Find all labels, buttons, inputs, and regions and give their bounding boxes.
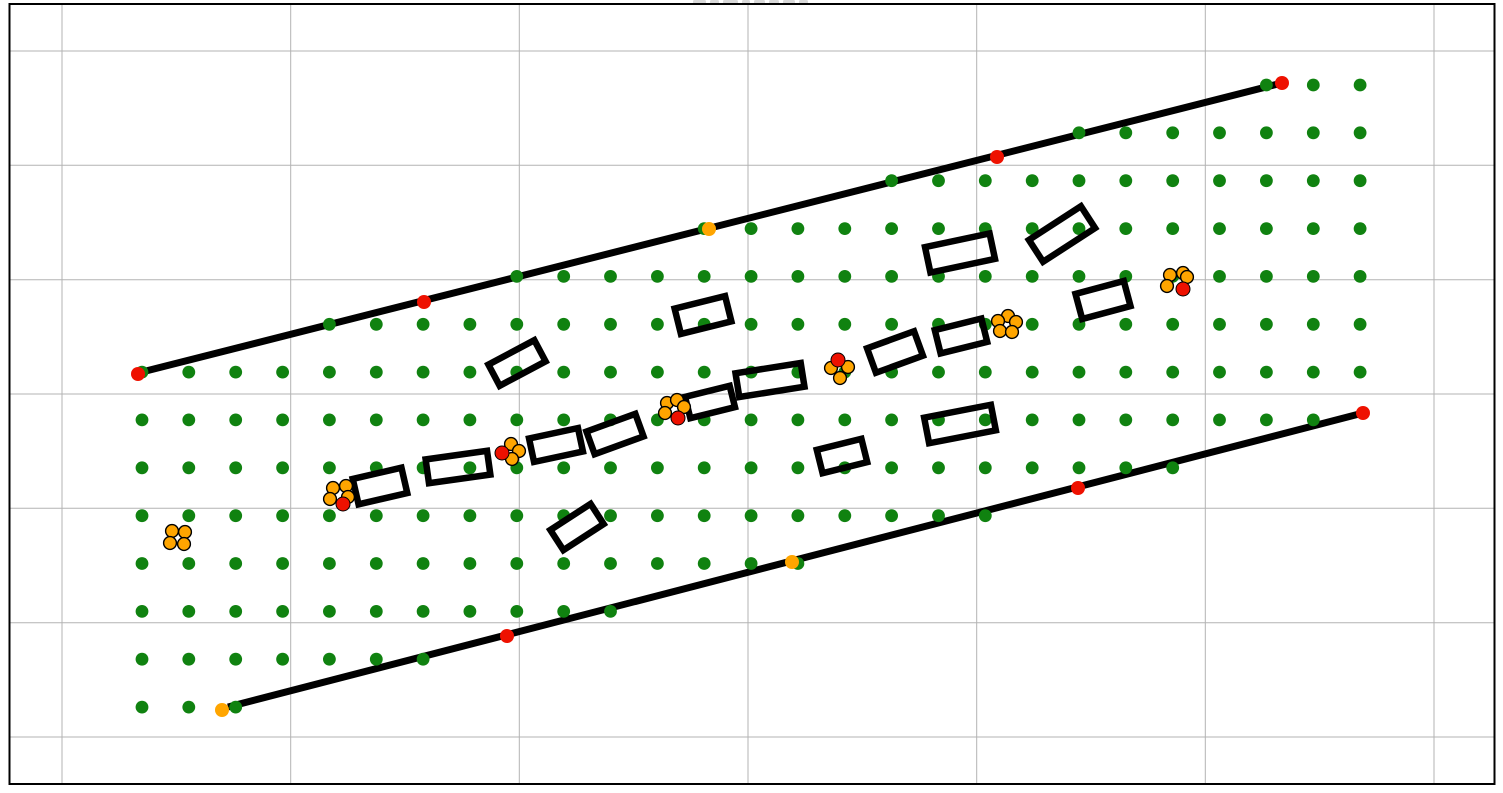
sample-point	[1260, 318, 1273, 331]
sample-point	[1026, 461, 1039, 474]
waypoint-red-dot	[990, 150, 1004, 164]
sample-point	[1166, 461, 1179, 474]
sample-point	[745, 509, 758, 522]
sample-point	[604, 557, 617, 570]
sample-point	[510, 318, 523, 331]
sample-point	[932, 509, 945, 522]
sample-point	[1260, 126, 1273, 139]
sample-point	[323, 318, 336, 331]
sample-point	[1307, 318, 1320, 331]
sample-point	[464, 605, 477, 618]
sample-point	[1119, 414, 1132, 427]
waypoint-orange-dot	[702, 222, 716, 236]
sample-point	[276, 509, 289, 522]
sample-point	[136, 653, 149, 666]
sample-point	[885, 222, 898, 235]
sample-point	[1026, 174, 1039, 187]
sample-point	[1354, 222, 1367, 235]
sample-point	[1354, 79, 1367, 92]
sample-point	[182, 557, 195, 570]
sample-point	[698, 461, 711, 474]
sample-point	[182, 414, 195, 427]
sample-point	[464, 414, 477, 427]
sample-point	[510, 605, 523, 618]
sample-point	[792, 414, 805, 427]
sample-point	[464, 318, 477, 331]
sample-point	[464, 366, 477, 379]
sample-point	[1213, 270, 1226, 283]
sample-point	[1354, 126, 1367, 139]
sample-point	[1260, 270, 1273, 283]
cluster-orange-dot	[994, 325, 1007, 338]
sample-point	[510, 509, 523, 522]
sample-point	[417, 605, 430, 618]
sample-point	[510, 557, 523, 570]
cluster-orange-dot	[164, 537, 177, 550]
sample-point	[182, 701, 195, 714]
sample-point	[417, 414, 430, 427]
sample-point	[745, 414, 758, 427]
sample-point	[136, 701, 149, 714]
cluster-red-dot	[1176, 282, 1190, 296]
sample-point	[651, 270, 664, 283]
sample-point	[1026, 270, 1039, 283]
sample-point	[651, 366, 664, 379]
sample-point	[182, 461, 195, 474]
sample-point	[136, 414, 149, 427]
cluster-orange-dot	[179, 526, 192, 539]
sample-point	[1354, 366, 1367, 379]
sample-point	[698, 270, 711, 283]
plot-canvas	[0, 0, 1503, 793]
sample-point	[792, 270, 805, 283]
sample-point	[838, 509, 851, 522]
sample-point	[604, 366, 617, 379]
sample-point	[745, 270, 758, 283]
sample-point	[464, 461, 477, 474]
cluster-orange-dot	[659, 407, 672, 420]
sample-point	[229, 366, 242, 379]
sample-point	[1073, 126, 1086, 139]
sample-point	[838, 414, 851, 427]
sample-point	[1073, 174, 1086, 187]
sample-point	[276, 557, 289, 570]
sample-point	[323, 605, 336, 618]
cluster-red-dot	[336, 497, 350, 511]
sample-point	[1119, 174, 1132, 187]
sample-point	[1166, 366, 1179, 379]
sample-point	[979, 509, 992, 522]
cluster-orange-dot	[1006, 326, 1019, 339]
sample-point	[1073, 366, 1086, 379]
sample-point	[838, 318, 851, 331]
sample-point	[1213, 222, 1226, 235]
cluster-orange-dot	[324, 493, 337, 506]
sample-point	[1307, 414, 1320, 427]
sample-point	[604, 605, 617, 618]
sample-point	[136, 509, 149, 522]
sample-point	[557, 366, 570, 379]
sample-point	[370, 318, 383, 331]
sample-point	[838, 270, 851, 283]
sample-point	[276, 366, 289, 379]
sample-point	[745, 461, 758, 474]
sample-point	[276, 461, 289, 474]
sample-point	[1166, 174, 1179, 187]
sample-point	[1119, 461, 1132, 474]
sample-point	[932, 366, 945, 379]
sample-point	[651, 509, 664, 522]
sample-point	[698, 366, 711, 379]
sample-point	[229, 461, 242, 474]
sample-point	[1166, 222, 1179, 235]
cluster-red-dot	[495, 446, 509, 460]
cluster-red-dot	[831, 353, 845, 367]
sample-point	[604, 318, 617, 331]
sample-point	[745, 222, 758, 235]
cluster-orange-dot	[178, 538, 191, 551]
sample-point	[557, 605, 570, 618]
sample-point	[979, 174, 992, 187]
waypoint-orange-dot	[215, 703, 229, 717]
cluster-red-dot	[671, 411, 685, 425]
sample-point	[792, 509, 805, 522]
sample-point	[792, 461, 805, 474]
sample-point	[698, 509, 711, 522]
sample-point	[370, 509, 383, 522]
sample-point	[838, 222, 851, 235]
sample-point	[1026, 366, 1039, 379]
sample-point	[417, 653, 430, 666]
sample-point	[1166, 414, 1179, 427]
sample-point	[1354, 174, 1367, 187]
sample-point	[182, 605, 195, 618]
sample-point	[1119, 318, 1132, 331]
waypoint-red-dot	[131, 367, 145, 381]
cluster-orange-dot	[834, 372, 847, 385]
sample-point	[136, 461, 149, 474]
sample-point	[323, 509, 336, 522]
sample-point	[229, 557, 242, 570]
sample-point	[323, 557, 336, 570]
sample-point	[323, 366, 336, 379]
sample-point	[557, 318, 570, 331]
cluster-orange-dot	[1181, 271, 1194, 284]
sample-point	[651, 461, 664, 474]
sample-point	[464, 557, 477, 570]
sample-point	[1073, 461, 1086, 474]
sample-point	[885, 509, 898, 522]
sample-point	[885, 318, 898, 331]
sample-point	[370, 366, 383, 379]
waypoint-red-dot	[1071, 481, 1085, 495]
sample-point	[370, 653, 383, 666]
sample-point	[932, 174, 945, 187]
sample-point	[792, 318, 805, 331]
sample-point	[557, 414, 570, 427]
sample-point	[1026, 414, 1039, 427]
sample-point	[229, 653, 242, 666]
sample-point	[557, 557, 570, 570]
sample-point	[1307, 270, 1320, 283]
sample-point	[979, 461, 992, 474]
sample-point	[979, 270, 992, 283]
sample-point	[1119, 126, 1132, 139]
sample-point	[276, 605, 289, 618]
sample-point	[1260, 414, 1273, 427]
sample-point	[229, 605, 242, 618]
sample-point	[323, 461, 336, 474]
sample-point	[557, 461, 570, 474]
sample-point	[745, 557, 758, 570]
sample-point	[1213, 414, 1226, 427]
sample-point	[323, 653, 336, 666]
sample-point	[1213, 174, 1226, 187]
sample-point	[557, 270, 570, 283]
sample-point	[745, 318, 758, 331]
sample-point	[1026, 318, 1039, 331]
sample-point	[417, 318, 430, 331]
sample-point	[1260, 222, 1273, 235]
sample-point	[464, 509, 477, 522]
sample-point	[885, 461, 898, 474]
sample-point	[885, 414, 898, 427]
sample-point	[1073, 414, 1086, 427]
sample-point	[932, 461, 945, 474]
sample-point	[1354, 318, 1367, 331]
sample-point	[1260, 366, 1273, 379]
sample-point	[1307, 366, 1320, 379]
sample-point	[604, 509, 617, 522]
waypoint-red-dot	[500, 629, 514, 643]
sample-point	[1307, 126, 1320, 139]
sample-point	[136, 557, 149, 570]
sample-point	[1354, 270, 1367, 283]
sample-point	[651, 318, 664, 331]
waypoint-red-dot	[1356, 406, 1370, 420]
sample-point	[1073, 270, 1086, 283]
waypoint-red-dot	[417, 295, 431, 309]
sample-point	[417, 366, 430, 379]
sample-point	[136, 605, 149, 618]
cluster-orange-dot	[1161, 280, 1174, 293]
sample-point	[698, 557, 711, 570]
sample-point	[229, 509, 242, 522]
sample-point	[323, 414, 336, 427]
sample-point	[417, 509, 430, 522]
sample-point	[932, 222, 945, 235]
sample-point	[182, 653, 195, 666]
sample-point	[651, 557, 664, 570]
waypoint-red-dot	[1275, 76, 1289, 90]
sample-point	[1213, 318, 1226, 331]
sample-point	[276, 414, 289, 427]
sample-point	[1166, 126, 1179, 139]
sample-point	[1260, 79, 1273, 92]
sample-point	[1119, 366, 1132, 379]
sample-point	[229, 414, 242, 427]
sample-point	[510, 270, 523, 283]
sample-point	[1166, 318, 1179, 331]
sample-point	[182, 366, 195, 379]
sample-point	[792, 222, 805, 235]
sample-point	[276, 653, 289, 666]
sample-point	[417, 557, 430, 570]
sample-point	[604, 461, 617, 474]
sample-point	[1307, 79, 1320, 92]
sample-point	[979, 366, 992, 379]
sample-point	[1213, 366, 1226, 379]
sample-point	[510, 414, 523, 427]
sample-point	[1119, 222, 1132, 235]
sample-point	[604, 270, 617, 283]
sample-point	[1307, 174, 1320, 187]
sample-point	[370, 605, 383, 618]
sample-point	[1260, 174, 1273, 187]
sample-point	[1307, 222, 1320, 235]
sample-point	[229, 701, 242, 714]
waypoint-orange-dot	[785, 555, 799, 569]
sample-point	[885, 174, 898, 187]
sample-point	[182, 509, 195, 522]
sample-point	[1213, 126, 1226, 139]
cluster-orange-dot	[166, 525, 179, 538]
figure	[0, 0, 1503, 793]
sample-point	[370, 557, 383, 570]
sample-point	[885, 270, 898, 283]
sample-point	[370, 414, 383, 427]
